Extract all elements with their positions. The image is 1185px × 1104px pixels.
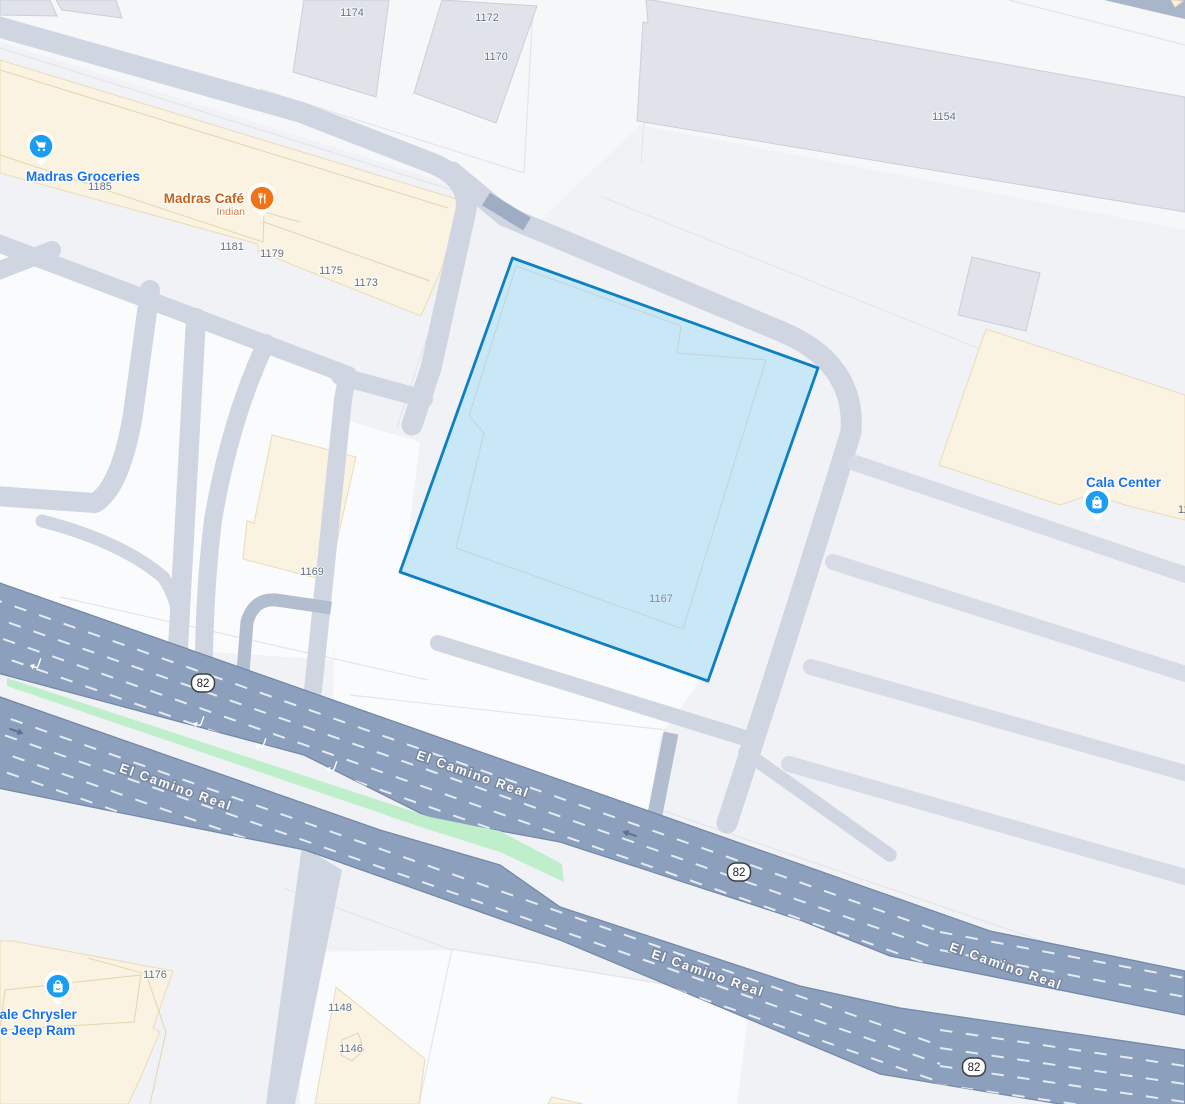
svg-text:1172: 1172 [475,12,499,24]
svg-text:Madras Groceries: Madras Groceries [26,169,140,184]
svg-text:1181: 1181 [220,241,244,253]
svg-text:1173: 1173 [354,277,378,289]
svg-text:Indian: Indian [216,206,245,218]
svg-text:1170: 1170 [484,51,508,63]
svg-text:vale Chrysler: vale Chrysler [0,1007,78,1022]
svg-text:1174: 1174 [340,7,364,19]
svg-text:82: 82 [968,1062,981,1074]
svg-text:Madras Café: Madras Café [164,191,245,206]
svg-text:ge Jeep Ram: ge Jeep Ram [0,1023,75,1038]
svg-text:1167: 1167 [649,593,673,605]
svg-text:1146: 1146 [339,1043,363,1055]
svg-text:1179: 1179 [260,248,284,260]
svg-text:1154: 1154 [932,111,956,123]
svg-text:82: 82 [733,867,746,879]
svg-text:82: 82 [197,678,210,690]
svg-text:11: 11 [1178,504,1185,516]
svg-text:1175: 1175 [319,265,343,277]
svg-text:1148: 1148 [328,1002,352,1014]
svg-text:Cala Center: Cala Center [1086,475,1162,490]
svg-text:1176: 1176 [143,969,167,981]
svg-text:1169: 1169 [300,566,324,578]
